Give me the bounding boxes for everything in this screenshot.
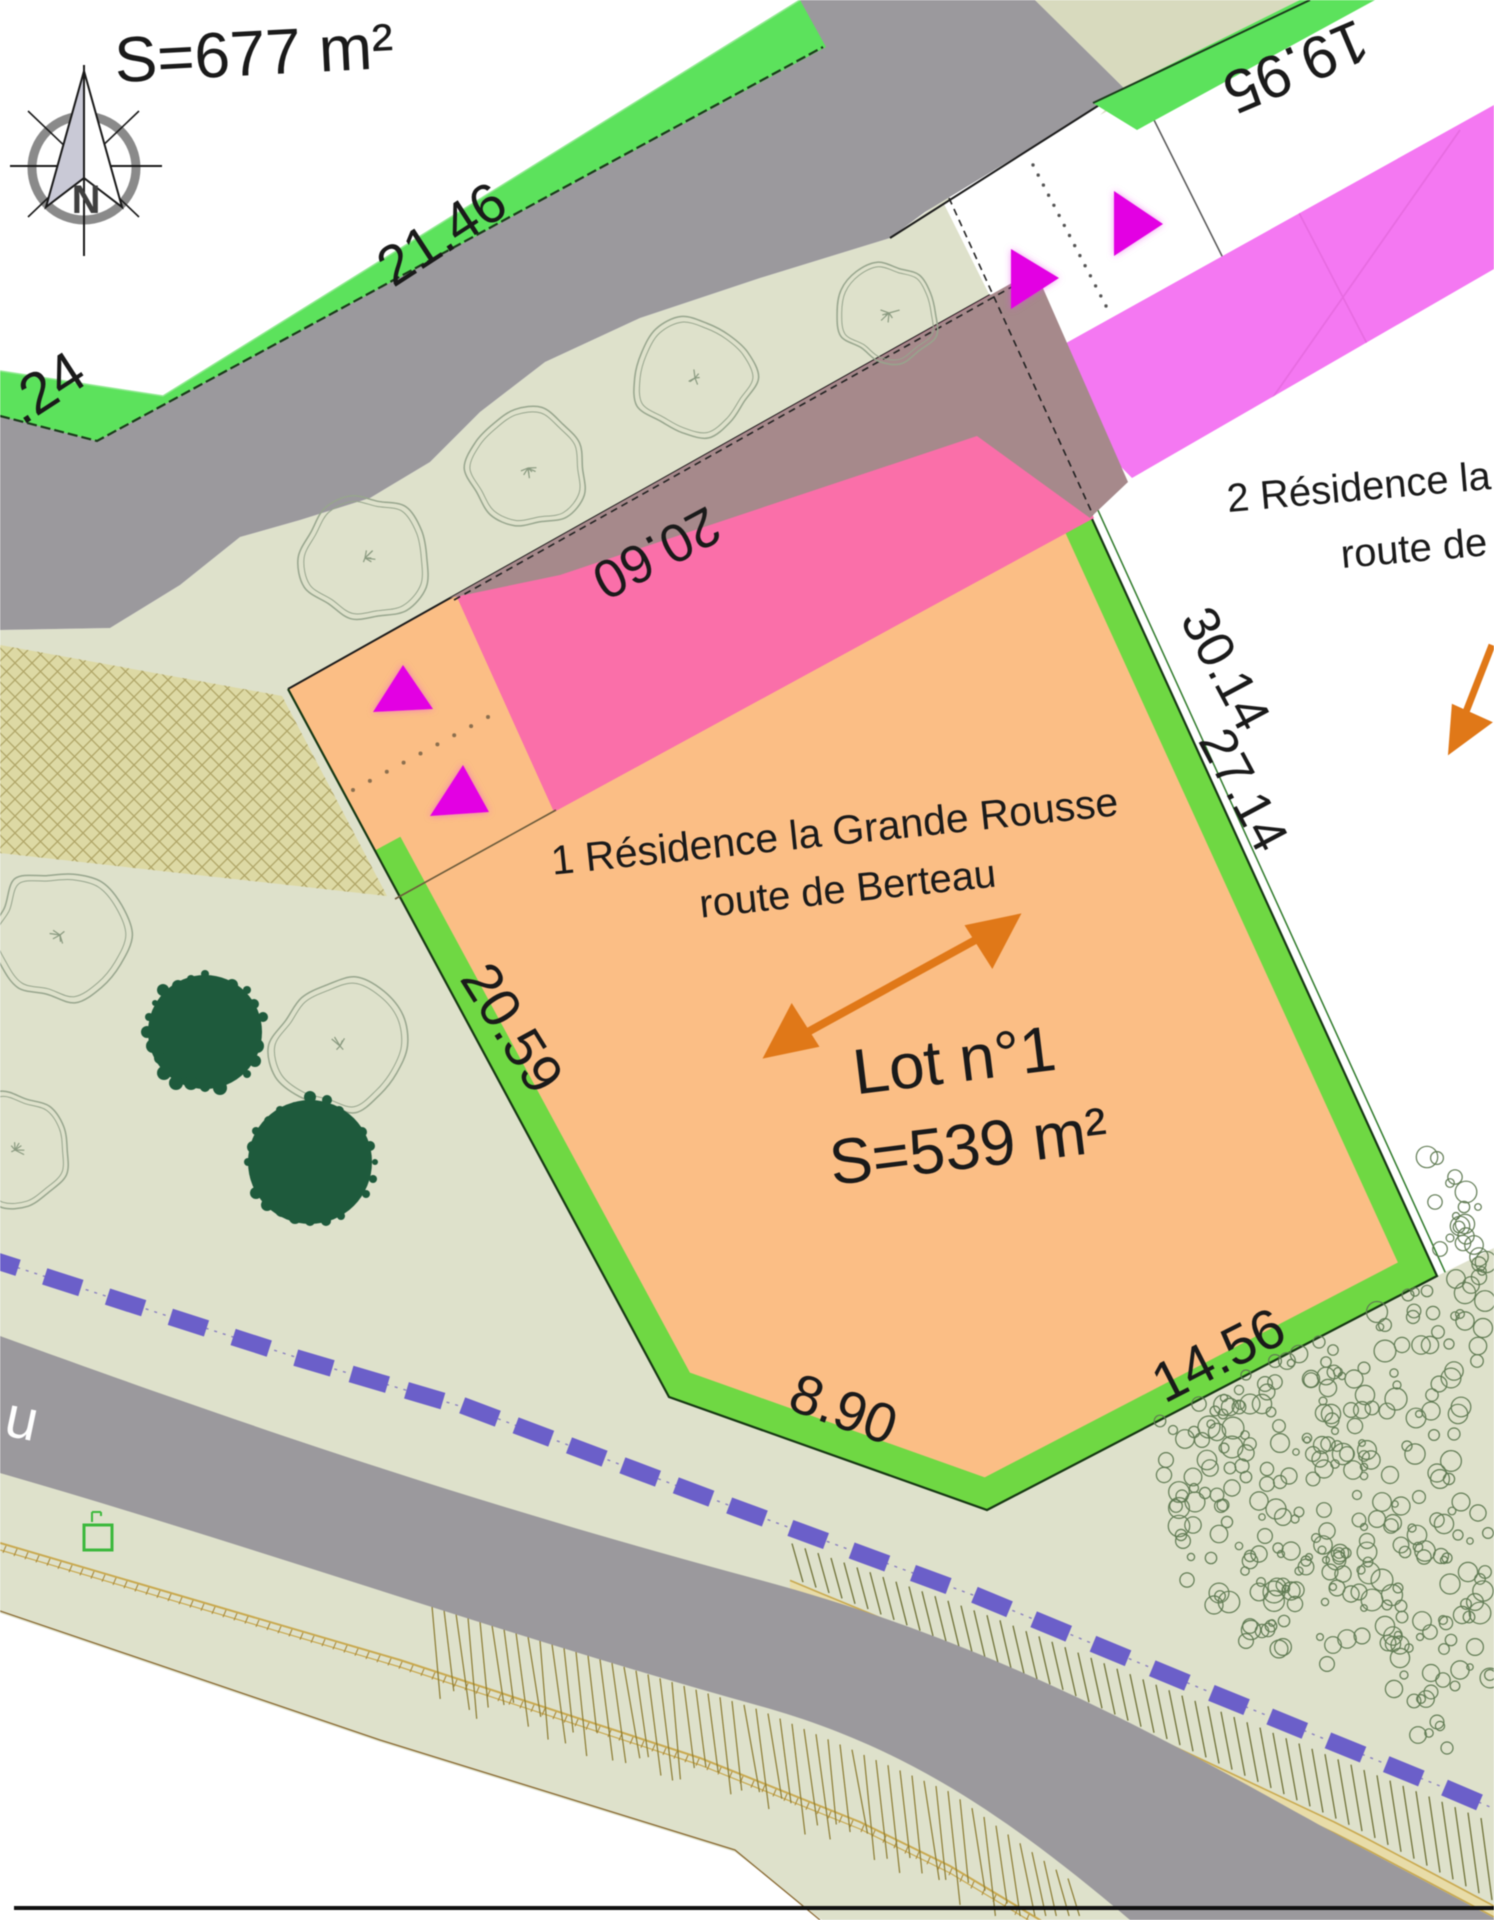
svg-text:S=677 m²: S=677 m² [113, 10, 396, 97]
svg-text:N: N [72, 178, 101, 222]
